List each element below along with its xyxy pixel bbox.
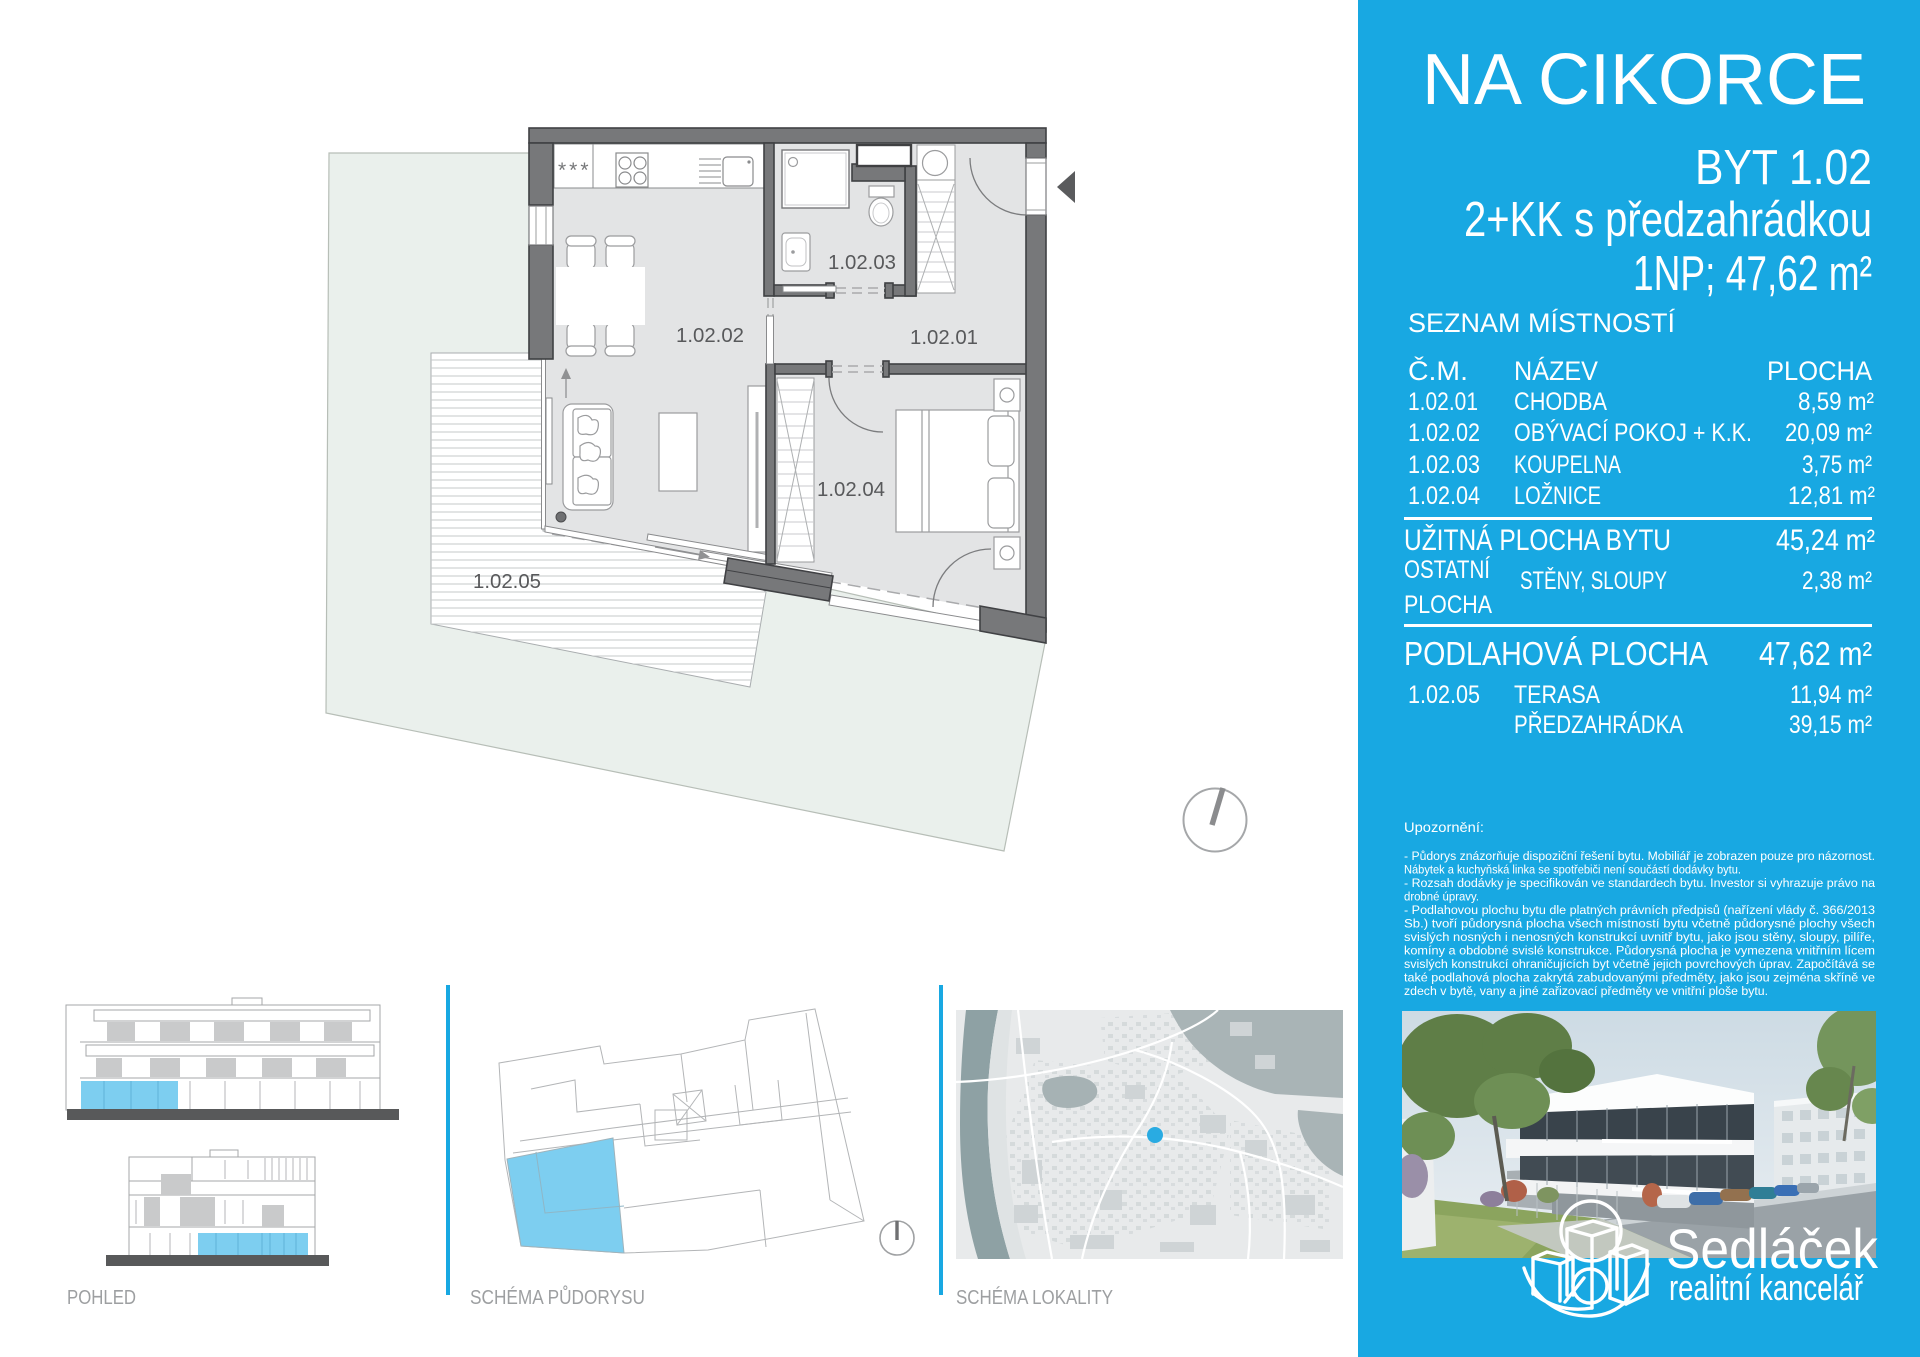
svg-text:3,75 m²: 3,75 m²	[1802, 451, 1872, 479]
svg-text:1.02.03: 1.02.03	[1408, 451, 1480, 479]
svg-text:1.02.01: 1.02.01	[1408, 388, 1478, 416]
svg-text:***: ***	[558, 159, 592, 182]
svg-text:komíny a obdobné svislé konstr: komíny a obdobné svislé konstrukce. Půdo…	[1404, 944, 1875, 958]
svg-text:zdech v bytě, vany a jiné zaři: zdech v bytě, vany a jiné zařizovací pře…	[1404, 984, 1768, 998]
svg-text:POHLED: POHLED	[67, 1287, 136, 1309]
svg-text:KOUPELNA: KOUPELNA	[1514, 451, 1621, 479]
svg-text:8,59 m²: 8,59 m²	[1798, 388, 1874, 416]
svg-text:20,09 m²: 20,09 m²	[1785, 419, 1872, 447]
svg-text:NA CIKORCE: NA CIKORCE	[1422, 40, 1866, 120]
svg-text:drobné úpravy.: drobné úpravy.	[1404, 890, 1479, 904]
svg-text:PODLAHOVÁ PLOCHA: PODLAHOVÁ PLOCHA	[1404, 635, 1708, 672]
svg-text:SCHÉMA LOKALITY: SCHÉMA LOKALITY	[956, 1286, 1113, 1309]
svg-text:UŽITNÁ PLOCHA BYTU: UŽITNÁ PLOCHA BYTU	[1404, 524, 1671, 557]
svg-text:1.02.03: 1.02.03	[828, 252, 896, 274]
svg-text:svislých nosných i nenosných k: svislých nosných i nenosných konstrukcí …	[1404, 930, 1875, 944]
svg-text:realitní kancelář: realitní kancelář	[1669, 1267, 1864, 1308]
svg-text:Sb.) tvoří půdorysná plocha vš: Sb.) tvoří půdorysná plocha všech místno…	[1404, 917, 1875, 931]
svg-text:1.02.05: 1.02.05	[1408, 681, 1480, 709]
svg-text:LOŽNICE: LOŽNICE	[1514, 481, 1601, 510]
svg-text:2+KK s předzahrádkou: 2+KK s předzahrádkou	[1464, 193, 1872, 247]
svg-text:1.02.02: 1.02.02	[676, 325, 744, 347]
svg-text:OSTATNÍ: OSTATNÍ	[1404, 555, 1490, 584]
svg-text:PLOCHA: PLOCHA	[1404, 591, 1492, 619]
svg-text:11,94 m²: 11,94 m²	[1790, 681, 1872, 709]
svg-text:PLOCHA: PLOCHA	[1767, 356, 1872, 386]
svg-text:OBÝVACÍ POKOJ + K.K.: OBÝVACÍ POKOJ + K.K.	[1514, 418, 1752, 447]
svg-text:Upozornění:: Upozornění:	[1404, 820, 1484, 835]
svg-text:- Rozsah dodávky je specifikov: - Rozsah dodávky je specifikován ve stan…	[1404, 876, 1875, 890]
svg-text:47,62 m²: 47,62 m²	[1759, 635, 1872, 672]
svg-text:1.02.01: 1.02.01	[910, 327, 978, 349]
svg-text:45,24 m²: 45,24 m²	[1776, 524, 1875, 557]
svg-text:BYT 1.02: BYT 1.02	[1695, 141, 1872, 195]
svg-text:PŘEDZAHRÁDKA: PŘEDZAHRÁDKA	[1514, 710, 1683, 739]
svg-text:1.02.04: 1.02.04	[817, 479, 885, 501]
svg-text:39,15 m²: 39,15 m²	[1789, 711, 1872, 739]
svg-text:STĚNY, SLOUPY: STĚNY, SLOUPY	[1520, 566, 1667, 595]
svg-text:1.02.05: 1.02.05	[473, 571, 541, 593]
svg-text:TERASA: TERASA	[1514, 681, 1600, 709]
svg-text:- Půdorys znázorňuje dispozičn: - Půdorys znázorňuje dispoziční řešení b…	[1404, 849, 1875, 863]
svg-text:svislých konstrukcí ohraničují: svislých konstrukcí ohraničujících byt v…	[1404, 957, 1875, 971]
svg-text:CHODBA: CHODBA	[1514, 388, 1607, 416]
svg-text:také podlahová plocha zakrytá: také podlahová plocha zakrytá zabudovaný…	[1404, 971, 1875, 985]
svg-text:12,81 m²: 12,81 m²	[1788, 482, 1875, 510]
svg-text:SEZNAM MÍSTNOSTÍ: SEZNAM MÍSTNOSTÍ	[1408, 308, 1675, 338]
svg-text:1.02.04: 1.02.04	[1408, 482, 1480, 510]
svg-text:Nábytek a kuchyňská linka se s: Nábytek a kuchyňská linka se spotřebiči …	[1404, 863, 1741, 877]
svg-text:1NP; 47,62 m²: 1NP; 47,62 m²	[1633, 247, 1872, 301]
svg-text:2,38 m²: 2,38 m²	[1802, 567, 1872, 595]
svg-text:NÁZEV: NÁZEV	[1514, 356, 1598, 386]
svg-text:Č.M.: Č.M.	[1408, 355, 1468, 386]
svg-text:- Podlahovou plochu bytu dle p: - Podlahovou plochu bytu dle platných pr…	[1404, 903, 1875, 917]
svg-text:SCHÉMA PŮDORYSU: SCHÉMA PŮDORYSU	[470, 1285, 645, 1309]
svg-text:1.02.02: 1.02.02	[1408, 419, 1480, 447]
